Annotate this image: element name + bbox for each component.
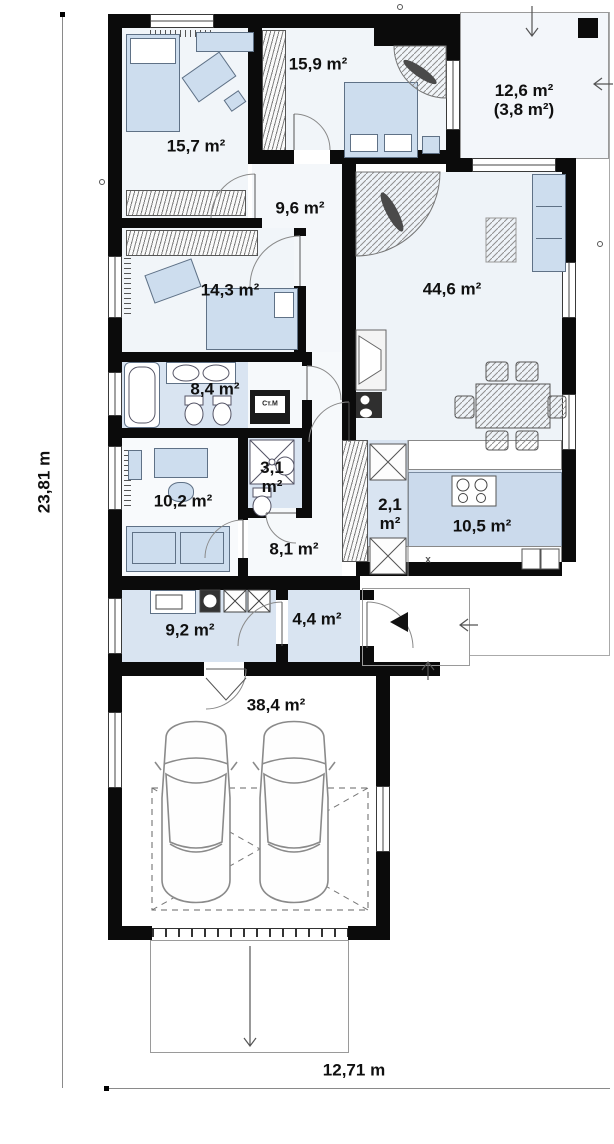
- floor-plan: 23,81 m 12,71 m 15,7 m² 15,9 m² 12,6 m² …: [0, 0, 614, 1144]
- hob: [452, 476, 496, 506]
- rug: [486, 218, 516, 262]
- room-label-kitchen: 10,5 m²: [453, 516, 512, 535]
- room-label-utility: 9,2 m²: [165, 620, 214, 639]
- chimney-arc-living: [356, 172, 440, 256]
- room-label-study: 10,2 m²: [154, 491, 213, 510]
- room-label-bedroom2: 15,9 m²: [289, 54, 348, 73]
- dimension-dot: [104, 1086, 109, 1091]
- dimension-dot: [60, 12, 65, 17]
- room-label-bathroom: 8,4 m²: [190, 379, 239, 398]
- dimension-label-width: 12,71 m: [323, 1060, 385, 1079]
- room-label-corridor: 9,6 m²: [275, 198, 324, 217]
- utility-appliances: [156, 590, 270, 612]
- room-label-pantry: 2,1 m²: [378, 495, 402, 533]
- room-label-bedroom3: 14,3 m²: [201, 280, 260, 299]
- terrace-area-main: 12,6 m²: [494, 81, 554, 100]
- room-label-bedroom1: 15,7 m²: [167, 136, 226, 155]
- room-label-shower: 3,1 m²: [260, 458, 284, 496]
- kitchen-sink: [522, 549, 559, 569]
- chimney-arc-bedroom2: [394, 46, 446, 98]
- shower-area-unit: m²: [260, 477, 284, 496]
- dimension-label-height: 23,81 m: [34, 451, 53, 513]
- washing-machine-label: Ст.М: [262, 401, 278, 408]
- fireplace: [356, 330, 386, 418]
- car: [155, 722, 237, 903]
- room-label-terrace: 12,6 m² (3,8 m²): [494, 81, 554, 119]
- room-label-hall: 8,1 m²: [269, 539, 318, 558]
- room-label-garage: 38,4 m²: [247, 695, 306, 714]
- terrace-area-secondary: (3,8 m²): [494, 100, 554, 119]
- car: [253, 722, 335, 903]
- dimension-line-left: [62, 14, 63, 1088]
- room-label-living: 44,6 m²: [423, 279, 482, 298]
- dimension-line-bottom: [106, 1088, 610, 1089]
- plan-overlay: [0, 0, 614, 1144]
- shower-area-value: 3,1: [260, 458, 284, 477]
- eaves-markers: [100, 5, 603, 247]
- pantry-area-unit: m²: [378, 514, 402, 533]
- kitchen-counter-label: x: [425, 555, 431, 566]
- pantry-area-value: 2,1: [378, 495, 402, 514]
- room-label-vestibule: 4,4 m²: [292, 609, 341, 628]
- dining-set: [455, 362, 566, 450]
